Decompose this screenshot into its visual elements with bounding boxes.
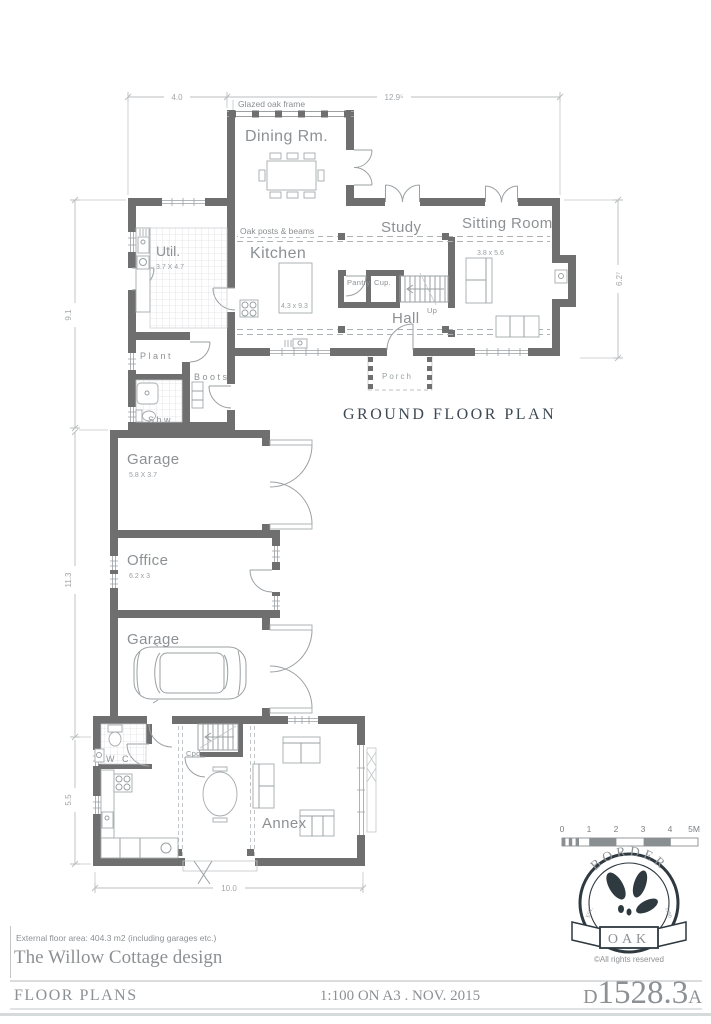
- dim-bottom: 10.0: [221, 884, 237, 893]
- label-hall: Hall: [392, 310, 419, 327]
- label-pantry: Pantry: [347, 278, 370, 287]
- dim-left-lower: 5.5: [64, 794, 73, 806]
- label-garage-top: Garage: [127, 451, 179, 468]
- dim-right: 6.2⁷: [615, 272, 624, 286]
- drawing-number-prefix: D: [583, 986, 597, 1008]
- dim-top-left: 4.0: [171, 93, 183, 102]
- scale-label-2: 2: [614, 824, 619, 834]
- label-wc: W C: [106, 754, 131, 764]
- scale-label-1: 1: [587, 824, 592, 834]
- label-cpd: Cpd.: [186, 749, 203, 758]
- label-kitchen-size: 4.3 x 9.3: [281, 303, 308, 310]
- label-shower: Shw.: [148, 415, 178, 425]
- dim-left-middle: 11.3: [64, 572, 73, 588]
- scale-label-5m: 5M: [688, 824, 700, 834]
- dim-left-upper: 9.1: [64, 309, 73, 321]
- sitting-room-fixtures: [466, 258, 567, 337]
- footer-scale-date: 1:100 ON A3 . NOV. 2015: [320, 988, 480, 1004]
- note-glazed-oak-frame: Glazed oak frame: [238, 99, 305, 109]
- annex: [93, 716, 376, 884]
- label-plant: Plant: [140, 351, 173, 361]
- car: [134, 643, 246, 703]
- label-annex: Annex: [262, 815, 307, 832]
- footer-sheet-name: FLOOR PLANS: [14, 987, 138, 1004]
- drawing-sheet: 4.0 12.9⁵ 9.1 11.3 5.5 6.2⁷ 10.0 Glazed …: [0, 0, 711, 1024]
- label-porch: Porch: [382, 372, 413, 381]
- util-fixtures: [136, 228, 227, 328]
- logo-copyright: ©All rights reserved: [594, 955, 664, 964]
- label-boots: Boots: [194, 372, 230, 382]
- garage-doors: [250, 440, 312, 713]
- label-stairs-up: Up: [427, 306, 437, 315]
- floor-plan-drawing: 4.0 12.9⁵ 9.1 11.3 5.5 6.2⁷ 10.0 Glazed …: [0, 0, 711, 1024]
- drawing-number: D1528.3A: [583, 975, 702, 1011]
- label-dining-room: Dining Rm.: [245, 128, 328, 145]
- annex-kitchen: [101, 770, 178, 858]
- scale-label-4: 4: [668, 824, 673, 834]
- design-title: The Willow Cottage design: [14, 947, 223, 968]
- labels: 4.0 12.9⁵ 9.1 11.3 5.5 6.2⁷ 10.0 Glazed …: [64, 92, 700, 964]
- label-office: Office: [127, 552, 168, 569]
- main-stairs: [400, 273, 448, 305]
- label-sitting-room: Sitting Room: [462, 215, 553, 232]
- label-util-size: 3.7 X 4.7: [156, 264, 184, 271]
- label-util: Util.: [156, 243, 180, 259]
- dining-table: [259, 153, 324, 198]
- label-kitchen: Kitchen: [250, 245, 306, 262]
- drawing-number-main: 1528.3: [598, 975, 689, 1011]
- label-cupboard: Cup.: [374, 278, 391, 287]
- drawing-number-suffix: A: [688, 987, 702, 1008]
- scale-bar: [562, 838, 698, 846]
- annex-stairs: [198, 724, 238, 750]
- dim-top-right: 12.9⁵: [385, 93, 404, 102]
- label-garage-bottom: Garage: [127, 631, 179, 648]
- label-garage-top-size: 5.8 X 3.7: [129, 472, 157, 479]
- plan-title: GROUND FLOOR PLAN: [343, 406, 556, 423]
- label-office-size: 6.2 x 3: [129, 573, 150, 580]
- area-note: External floor area: 404.3 m2 (including…: [16, 933, 217, 943]
- dimension-lines: [70, 92, 623, 893]
- scale-label-3: 3: [641, 824, 646, 834]
- label-sitting-size: 3.8 x 5.6: [477, 250, 504, 257]
- note-oak-posts-beams: Oak posts & beams: [240, 226, 314, 236]
- label-study: Study: [381, 219, 421, 236]
- annex-glazed-door: [183, 861, 257, 884]
- scale-label-0: 0: [560, 824, 565, 834]
- dining-room: [227, 110, 372, 206]
- logo-oak-text: OAK: [608, 932, 650, 947]
- boots-bench: [192, 382, 203, 408]
